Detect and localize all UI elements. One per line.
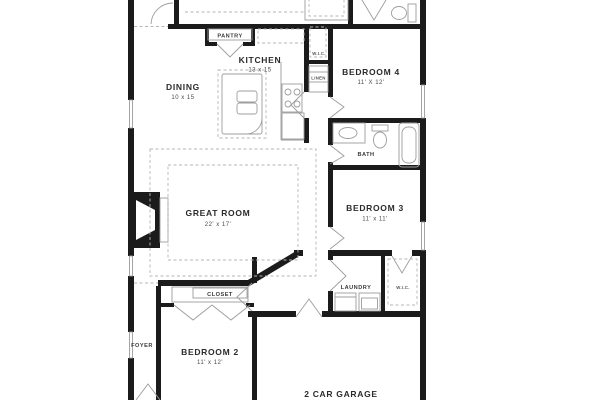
fireplace	[128, 192, 168, 248]
kitchen-counter	[281, 62, 304, 140]
dims-bedroom3: 11' x 11'	[362, 217, 388, 223]
label-closet: CLOSET	[207, 292, 233, 298]
labels-layer: PANTRY KITCHEN 13 x 15 DINING 10 x 15 GR…	[131, 34, 410, 400]
counter-upper-cabinets	[258, 29, 304, 43]
label-wic-bottom: W.I.C.	[396, 285, 410, 290]
dims-dining: 10 x 15	[171, 95, 194, 101]
washer	[335, 293, 356, 311]
dims-bedroom4: 11' X 12'	[357, 80, 384, 86]
shower	[305, 0, 348, 20]
label-pantry: PANTRY	[217, 34, 242, 40]
dims-bedroom2: 11' x 12'	[197, 360, 223, 366]
door-garage-entry	[296, 299, 322, 317]
label-bath: BATH	[357, 152, 374, 158]
dims-great-room: 22' x 17'	[205, 222, 231, 228]
label-bedroom3: BEDROOM 3	[346, 203, 404, 213]
wardrobe-rod-wic-bottom	[388, 259, 417, 305]
dryer	[359, 293, 380, 311]
door-closet-right	[212, 305, 250, 320]
label-dining: DINING	[166, 82, 200, 92]
window-bedroom4	[422, 85, 425, 118]
door-bath	[330, 145, 344, 164]
door-closet-left	[174, 305, 212, 320]
label-great-room: GREAT ROOM	[186, 208, 251, 218]
window-great-room	[130, 256, 133, 276]
label-bedroom4: BEDROOM 4	[342, 67, 400, 77]
toilet-bath	[372, 125, 388, 148]
floor-plan-drawing: PANTRY KITCHEN 13 x 15 DINING 10 x 15 GR…	[0, 0, 600, 400]
window-dining	[130, 100, 133, 128]
door-bedroom4	[330, 97, 344, 118]
door-bedroom3	[330, 227, 344, 249]
label-foyer: FOYER	[131, 343, 153, 349]
label-linen: LINEN	[311, 76, 325, 81]
label-laundry: LAUNDRY	[341, 285, 372, 291]
door-bath-top	[362, 0, 386, 20]
range	[282, 84, 302, 112]
floor-plan-page: PANTRY KITCHEN 13 x 15 DINING 10 x 15 GR…	[0, 0, 600, 400]
toilet-powder	[392, 4, 417, 22]
label-kitchen: KITCHEN	[239, 55, 282, 65]
door-top-left-swing	[151, 3, 173, 24]
refrigerator	[282, 113, 304, 139]
label-garage: 2 CAR GARAGE	[304, 389, 378, 399]
window-bedroom3	[422, 222, 425, 250]
island-sink-bowl-1	[237, 91, 257, 102]
island-sink-bowl-2	[237, 103, 257, 114]
label-wic-top: W.I.C.	[312, 51, 326, 56]
vanity-sink	[333, 123, 365, 143]
dims-kitchen: 13 x 15	[248, 68, 271, 74]
kitchen-island	[222, 74, 262, 134]
label-bedroom2: BEDROOM 2	[181, 347, 239, 357]
bathtub	[399, 123, 419, 167]
